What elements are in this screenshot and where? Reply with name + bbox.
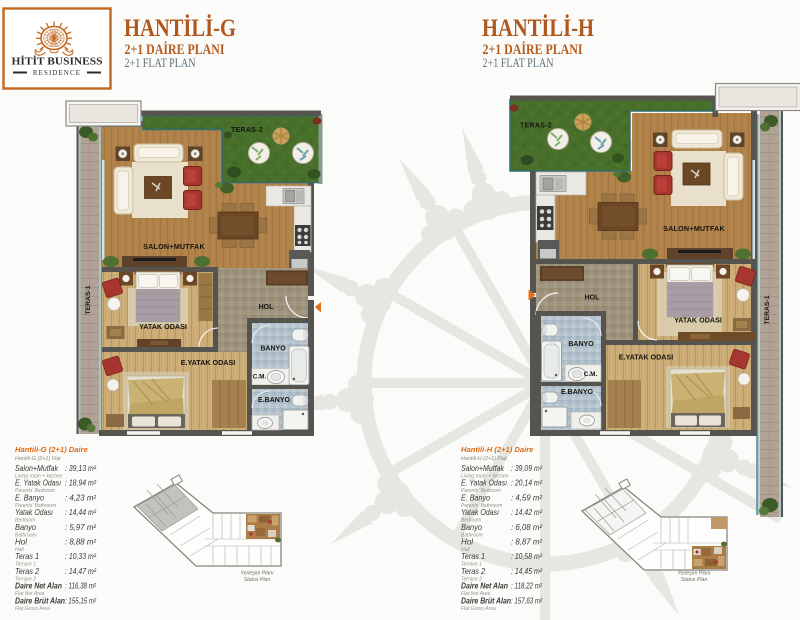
svg-text:SALON+MUTFAK: SALON+MUTFAK — [143, 242, 205, 251]
svg-text:Yatak Odası: Yatak Odası — [461, 508, 499, 517]
svg-text:Parents' Bathroom: Parents' Bathroom — [15, 503, 56, 509]
svg-text:Terrace 2: Terrace 2 — [461, 576, 482, 582]
svg-text:Flat Gross Area: Flat Gross Area — [461, 606, 496, 612]
svg-text:Hantili-G (2+1) Daire: Hantili-G (2+1) Daire — [15, 445, 89, 454]
svg-text:Banyo: Banyo — [15, 523, 37, 532]
svg-text:: 14,45 m²: : 14,45 m² — [511, 567, 542, 576]
svg-text:E. Banyo: E. Banyo — [461, 493, 490, 502]
svg-text:E.BANYO: E.BANYO — [258, 397, 290, 404]
svg-text:: 10,58 m²: : 10,58 m² — [511, 552, 542, 561]
svg-text:2+1 FLAT PLAN: 2+1 FLAT PLAN — [483, 56, 554, 70]
svg-text:Daire Brüt Alan: Daire Brüt Alan — [461, 596, 511, 605]
svg-text:E. Yatak Odası: E. Yatak Odası — [15, 479, 61, 488]
svg-text:HOL: HOL — [585, 295, 601, 302]
svg-text:Status Plan: Status Plan — [244, 577, 271, 583]
svg-text:: 39,13 m²: : 39,13 m² — [65, 464, 96, 473]
svg-text:BANYO: BANYO — [260, 346, 286, 353]
svg-text:: 8,87 m²: : 8,87 m² — [511, 538, 542, 547]
svg-text:: 14,47 m²: : 14,47 m² — [65, 567, 96, 576]
svg-text:YATAK ODASI: YATAK ODASI — [674, 316, 722, 325]
svg-text:Hol: Hol — [15, 538, 27, 547]
svg-text:: 18,94 m²: : 18,94 m² — [65, 479, 96, 488]
svg-text:Hantili-H (2+1) Flat: Hantili-H (2+1) Flat — [461, 456, 507, 462]
svg-text:C.M.: C.M. — [253, 374, 267, 381]
svg-text:Bathroom: Bathroom — [461, 532, 483, 538]
svg-text:YATAK ODASI: YATAK ODASI — [139, 322, 187, 331]
svg-text:HANTİLİ-G: HANTİLİ-G — [124, 14, 236, 42]
svg-text:Bedroom: Bedroom — [461, 518, 481, 524]
svg-text:: 4,59 m²: : 4,59 m² — [511, 493, 542, 502]
svg-text:Daire Net Alan: Daire Net Alan — [461, 582, 508, 591]
svg-text:HİTİT BUSINESS: HİTİT BUSINESS — [12, 56, 103, 68]
svg-text:: 6,08 m²: : 6,08 m² — [511, 523, 542, 532]
svg-text:E. Yatak Odası: E. Yatak Odası — [461, 479, 507, 488]
svg-text:: 5,97 m²: : 5,97 m² — [65, 523, 96, 532]
svg-text:Hall: Hall — [461, 547, 471, 553]
svg-text:TERAS-1: TERAS-1 — [85, 285, 92, 314]
svg-text:Hantili-G (2+1) Flat: Hantili-G (2+1) Flat — [15, 456, 61, 462]
svg-text:: 14,44 m²: : 14,44 m² — [65, 508, 96, 517]
svg-text:Hol: Hol — [461, 538, 473, 547]
svg-text:Salon+Mutfak: Salon+Mutfak — [461, 464, 505, 473]
svg-text:: 157,63 m²: : 157,63 m² — [511, 596, 542, 605]
svg-text:SALON+MUTFAK: SALON+MUTFAK — [663, 224, 725, 233]
svg-text:Teras 1: Teras 1 — [15, 552, 39, 561]
svg-text:TERAS-2: TERAS-2 — [520, 123, 552, 130]
svg-text:Bathroom: Bathroom — [15, 532, 37, 538]
svg-text:Teras 2: Teras 2 — [461, 567, 485, 576]
svg-text:HANTİLİ-H: HANTİLİ-H — [482, 14, 594, 42]
svg-text:HOL: HOL — [259, 304, 275, 311]
svg-text:Terrace 1: Terrace 1 — [15, 562, 36, 568]
svg-text:Terrace 2: Terrace 2 — [15, 576, 36, 582]
svg-text:: 14,42 m²: : 14,42 m² — [511, 508, 542, 517]
svg-text:E. Banyo: E. Banyo — [15, 493, 44, 502]
svg-text:E.BANYO: E.BANYO — [561, 389, 593, 396]
svg-text:: 116,38 m²: : 116,38 m² — [65, 582, 96, 591]
svg-text:Parents' Bedroom: Parents' Bedroom — [15, 488, 55, 494]
svg-text:Teras 2: Teras 2 — [15, 567, 39, 576]
svg-text:RESIDENCE: RESIDENCE — [33, 70, 81, 77]
svg-text:Terrace 1: Terrace 1 — [461, 562, 482, 568]
svg-text:Parents' Bedroom: Parents' Bedroom — [461, 488, 501, 494]
svg-text:TERAS-1: TERAS-1 — [764, 295, 771, 324]
svg-text:Salon+Mutfak: Salon+Mutfak — [15, 464, 59, 473]
svg-text:C.M.: C.M. — [584, 371, 598, 378]
svg-text:Flat Net Area: Flat Net Area — [15, 591, 44, 597]
svg-text:Daire Brüt Alan: Daire Brüt Alan — [15, 596, 65, 605]
svg-text:: 155,15 m²: : 155,15 m² — [65, 596, 96, 605]
svg-text:: 10,33 m²: : 10,33 m² — [65, 552, 96, 561]
svg-text:Yatak Odası: Yatak Odası — [15, 508, 53, 517]
svg-text:Hantili-H (2+1) Daire: Hantili-H (2+1) Daire — [461, 445, 534, 454]
svg-text:E.YATAK ODASI: E.YATAK ODASI — [181, 358, 236, 367]
svg-text:Banyo: Banyo — [461, 523, 483, 532]
svg-text:BANYO: BANYO — [568, 341, 594, 348]
svg-text:Parents' Bathroom: Parents' Bathroom — [461, 503, 502, 509]
svg-text:Living room + kitchen: Living room + kitchen — [15, 474, 63, 480]
svg-text:Daire Net Alan: Daire Net Alan — [15, 582, 62, 591]
svg-text:: 4,23 m²: : 4,23 m² — [65, 493, 96, 502]
svg-text:: 118,22 m²: : 118,22 m² — [511, 582, 542, 591]
svg-text:Teras 1: Teras 1 — [461, 552, 485, 561]
svg-text:: 8,88 m²: : 8,88 m² — [65, 538, 96, 547]
svg-text:Yerleşim Planı: Yerleşim Planı — [240, 571, 274, 577]
svg-text:Flat Gross Area: Flat Gross Area — [15, 606, 50, 612]
svg-text:: 39,09 m²: : 39,09 m² — [511, 464, 542, 473]
svg-text:Bedroom: Bedroom — [15, 518, 35, 524]
svg-text:TERAS-2: TERAS-2 — [231, 127, 263, 134]
svg-text:Hall: Hall — [15, 547, 25, 553]
svg-text:E.YATAK ODASI: E.YATAK ODASI — [619, 353, 674, 362]
svg-text:Status Plan: Status Plan — [681, 577, 708, 583]
svg-text:: 20,14 m²: : 20,14 m² — [511, 479, 542, 488]
svg-text:Living room + kitchen: Living room + kitchen — [461, 474, 509, 480]
svg-text:Flat Net Area: Flat Net Area — [461, 591, 490, 597]
svg-text:2+1 FLAT PLAN: 2+1 FLAT PLAN — [125, 56, 196, 70]
svg-text:Yerleşim Planı: Yerleşim Planı — [677, 571, 711, 577]
